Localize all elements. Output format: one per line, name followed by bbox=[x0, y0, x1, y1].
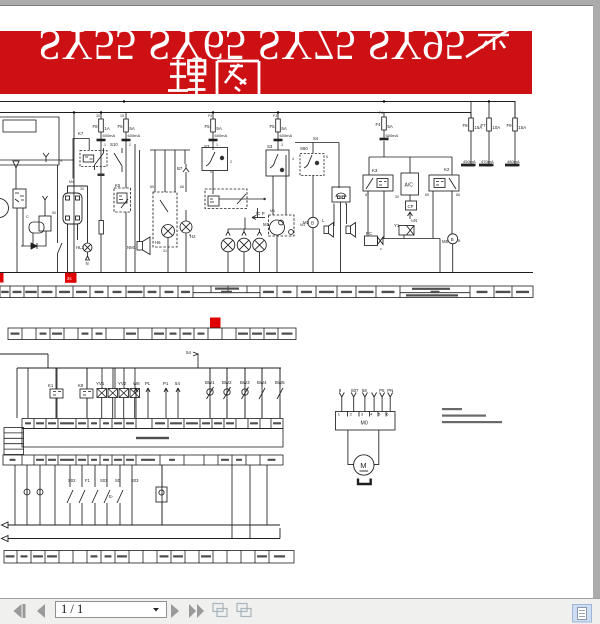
svg-text:H6: H6 bbox=[155, 240, 161, 245]
svg-text:K7: K7 bbox=[78, 131, 84, 136]
svg-text:K1: K1 bbox=[48, 383, 54, 388]
svg-text:YV2: YV2 bbox=[118, 381, 127, 386]
svg-text:600mA: 600mA bbox=[215, 133, 228, 138]
svg-text:L: L bbox=[322, 218, 325, 223]
svg-text:K3: K3 bbox=[372, 168, 378, 173]
svg-text:5A: 5A bbox=[216, 126, 221, 131]
svg-text:6: 6 bbox=[326, 155, 328, 159]
svg-text:M5: M5 bbox=[442, 239, 449, 244]
svg-text:54: 54 bbox=[175, 381, 180, 386]
svg-text:N: N bbox=[411, 219, 414, 223]
svg-text:2: 2 bbox=[129, 143, 131, 147]
svg-text:4: 4 bbox=[370, 412, 373, 417]
svg-text:5A: 5A bbox=[129, 126, 134, 131]
svg-text:2: 2 bbox=[350, 412, 353, 417]
svg-text:1: 1 bbox=[338, 412, 341, 417]
svg-text:a: a bbox=[189, 233, 191, 237]
svg-text:85: 85 bbox=[425, 193, 429, 197]
svg-text:B: B bbox=[311, 221, 314, 226]
svg-text:1A: 1A bbox=[104, 126, 109, 131]
svg-text:86: 86 bbox=[180, 185, 184, 189]
svg-text:N: N bbox=[86, 261, 89, 266]
svg-text:P1: P1 bbox=[163, 381, 169, 386]
svg-text:2: 2 bbox=[387, 136, 389, 140]
svg-text:K2: K2 bbox=[444, 167, 450, 172]
svg-text:4: 4 bbox=[292, 157, 294, 161]
svg-text:S02: S02 bbox=[68, 478, 76, 483]
svg-text:600mA: 600mA bbox=[128, 133, 141, 138]
svg-text:HL2: HL2 bbox=[76, 245, 84, 250]
svg-text:BW5: BW5 bbox=[275, 380, 285, 385]
svg-text:S3: S3 bbox=[204, 144, 210, 149]
svg-text:86: 86 bbox=[456, 193, 460, 197]
svg-text:600mA: 600mA bbox=[103, 133, 116, 138]
svg-text:85: 85 bbox=[150, 185, 154, 189]
svg-text:30: 30 bbox=[395, 195, 399, 199]
svg-text:F7: F7 bbox=[481, 123, 487, 128]
svg-text:M1: M1 bbox=[270, 209, 275, 213]
svg-text:5A: 5A bbox=[387, 124, 392, 129]
svg-text:W8: W8 bbox=[133, 381, 140, 386]
svg-text:30: 30 bbox=[96, 114, 100, 118]
svg-text:F9: F9 bbox=[507, 123, 513, 128]
svg-text:2s: 2s bbox=[67, 276, 72, 281]
svg-text:5A: 5A bbox=[281, 126, 286, 131]
svg-text:E-: E- bbox=[109, 494, 114, 499]
svg-text:F3: F3 bbox=[273, 114, 277, 118]
svg-text:F5: F5 bbox=[208, 114, 212, 118]
svg-text:NM1: NM1 bbox=[127, 245, 137, 250]
svg-text:YV1: YV1 bbox=[96, 381, 105, 386]
svg-text:F8: F8 bbox=[93, 124, 99, 129]
svg-text:15: 15 bbox=[120, 114, 124, 118]
svg-text:10A: 10A bbox=[492, 125, 500, 130]
svg-text:S07: S07 bbox=[351, 388, 359, 393]
svg-text:1: 1 bbox=[104, 143, 106, 147]
svg-text:M: M bbox=[360, 461, 366, 470]
svg-text:S10: S10 bbox=[110, 142, 118, 147]
svg-text:(C P: (C P bbox=[256, 211, 265, 216]
svg-text:5: 5 bbox=[378, 412, 381, 417]
svg-text:F4: F4 bbox=[376, 122, 382, 127]
svg-text:F4: F4 bbox=[379, 111, 383, 115]
svg-text:6: 6 bbox=[386, 412, 389, 417]
svg-text:5: 5 bbox=[210, 170, 212, 174]
svg-text:Y1: Y1 bbox=[394, 223, 400, 228]
svg-text:BW2: BW2 bbox=[222, 380, 232, 385]
svg-text:B: B bbox=[451, 237, 454, 242]
svg-text:PC: PC bbox=[366, 231, 372, 236]
svg-text:c: c bbox=[380, 247, 382, 251]
svg-text:M3: M3 bbox=[300, 223, 305, 227]
svg-text:3: 3 bbox=[361, 412, 364, 417]
svg-text:58: 58 bbox=[362, 388, 367, 393]
svg-text:F8: F8 bbox=[463, 123, 469, 128]
svg-text:M1: M1 bbox=[263, 222, 270, 227]
svg-text:BW3: BW3 bbox=[240, 380, 250, 385]
svg-text:S4: S4 bbox=[313, 136, 319, 141]
svg-text:C: C bbox=[26, 215, 29, 219]
svg-text:PN: PN bbox=[387, 388, 393, 393]
svg-text:S60: S60 bbox=[300, 146, 308, 151]
svg-text:F5: F5 bbox=[270, 124, 276, 129]
svg-text:N: N bbox=[414, 218, 417, 223]
svg-text:b: b bbox=[345, 202, 347, 206]
svg-text:S03: S03 bbox=[100, 478, 108, 483]
svg-text:31: 31 bbox=[163, 249, 167, 253]
svg-text:3: 3 bbox=[281, 143, 283, 147]
svg-text:B: B bbox=[458, 239, 461, 243]
svg-text:2: 2 bbox=[230, 160, 232, 164]
svg-text:M4: M4 bbox=[69, 180, 74, 184]
svg-text:15A: 15A bbox=[518, 125, 526, 130]
svg-text:F5: F5 bbox=[205, 124, 211, 129]
svg-text:F6: F6 bbox=[118, 124, 124, 129]
svg-text:S3: S3 bbox=[267, 144, 273, 149]
svg-text:K5: K5 bbox=[115, 183, 121, 188]
svg-text:CP: CP bbox=[408, 204, 414, 209]
svg-text:BW4: BW4 bbox=[257, 380, 267, 385]
svg-text:PL: PL bbox=[145, 381, 151, 386]
svg-text:S0: S0 bbox=[115, 478, 121, 483]
svg-text:8: 8 bbox=[339, 388, 342, 393]
svg-text:A/C: A/C bbox=[405, 183, 414, 189]
svg-text:P5: P5 bbox=[379, 388, 385, 393]
svg-text:B7: B7 bbox=[177, 166, 183, 171]
svg-text:F1: F1 bbox=[85, 478, 91, 483]
svg-text:470mA: 470mA bbox=[481, 159, 494, 164]
svg-text:K8: K8 bbox=[78, 383, 84, 388]
svg-text:87: 87 bbox=[365, 193, 369, 197]
svg-text:30: 30 bbox=[80, 187, 84, 191]
svg-text:BW1: BW1 bbox=[205, 380, 215, 385]
svg-text:450mA: 450mA bbox=[463, 159, 476, 164]
svg-text:600mA: 600mA bbox=[280, 133, 293, 138]
svg-text:480mA: 480mA bbox=[507, 159, 520, 164]
svg-text:S03: S03 bbox=[131, 478, 139, 483]
svg-text:1: 1 bbox=[216, 143, 218, 147]
svg-text:50: 50 bbox=[52, 211, 56, 215]
svg-text:54: 54 bbox=[186, 350, 192, 355]
svg-text:M0: M0 bbox=[361, 421, 368, 427]
